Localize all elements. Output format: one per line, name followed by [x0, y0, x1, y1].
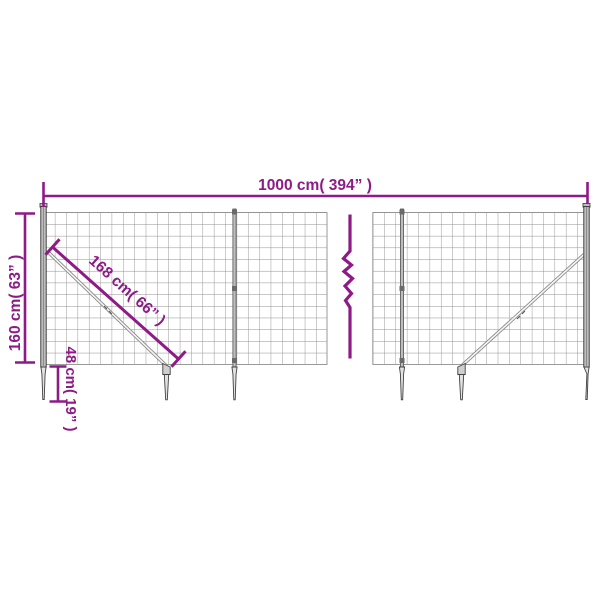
diagram-canvas: 1000 cm( 394” ) 160 cm( 63” ) 168 cm( 66…	[0, 0, 600, 600]
fence-dimension-diagram: 1000 cm( 394” ) 160 cm( 63” ) 168 cm( 66…	[0, 0, 600, 600]
brace-foot-sleeve	[163, 364, 170, 375]
mesh-panel-right	[373, 213, 588, 365]
ground-spikes	[41, 364, 589, 400]
ground-spike	[232, 367, 237, 400]
post-clamp	[400, 210, 405, 215]
intermediate-post-1	[232, 209, 237, 367]
post-clamp	[400, 358, 405, 363]
height-dimension-label: 160 cm( 63” )	[7, 255, 24, 352]
ground-spike	[164, 375, 168, 400]
intermediate-post-2	[400, 209, 405, 367]
post-clamp	[232, 286, 237, 291]
post-clamp	[232, 358, 237, 363]
end-post-left	[40, 204, 47, 368]
spike-dimension-label: 48 cm( 19” )	[62, 346, 79, 431]
ground-spike	[459, 375, 463, 400]
ground-spike	[41, 367, 46, 400]
width-dimension-label: 1000 cm( 394” )	[258, 177, 372, 194]
ground-spike	[399, 367, 404, 400]
end-post-right	[583, 204, 590, 368]
brace-foot-sleeve	[458, 364, 465, 375]
ground-spike	[584, 367, 589, 400]
break-symbol	[344, 215, 353, 359]
post-clamp	[232, 210, 237, 215]
post-clamp	[400, 286, 405, 291]
